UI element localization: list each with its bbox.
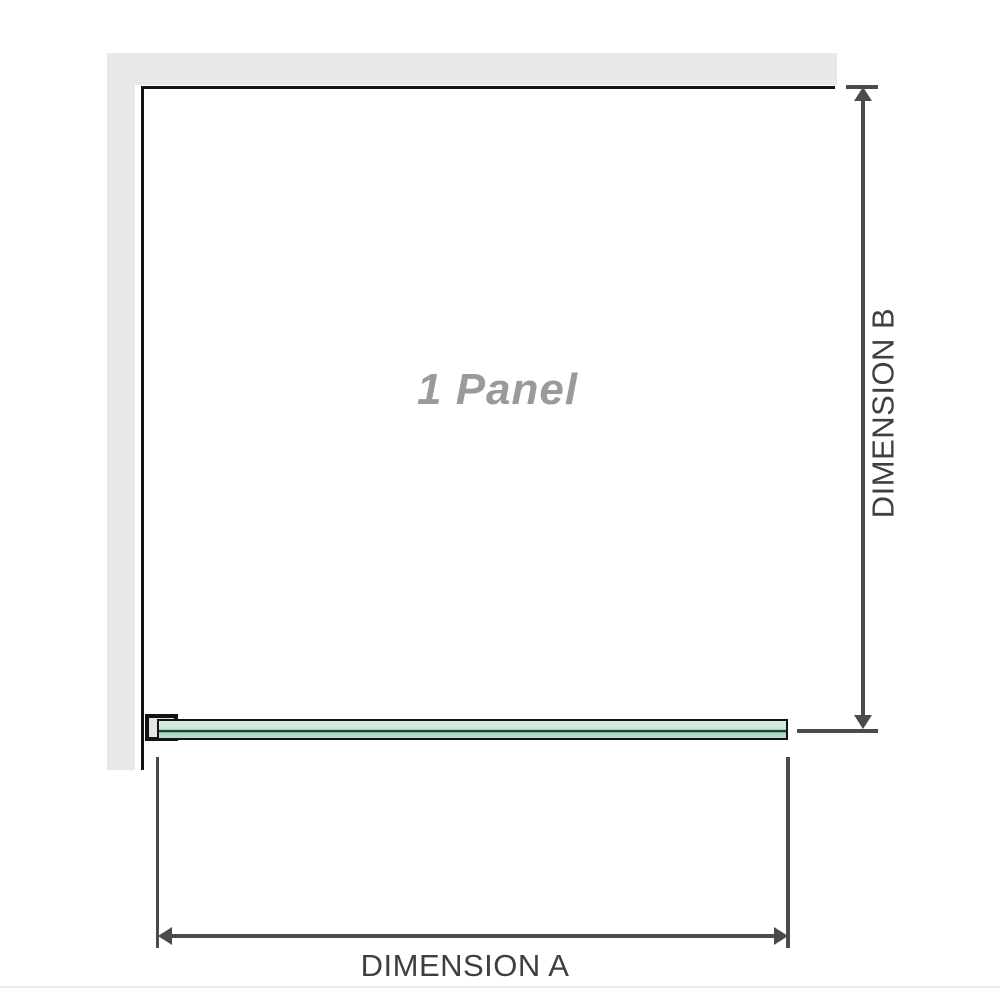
image-bottom-edge [0, 986, 1000, 988]
dimension-a-label: DIMENSION A [361, 950, 570, 981]
wall-segment-left [107, 53, 135, 770]
arrow-up-icon [854, 87, 872, 101]
arrow-left-icon [158, 927, 172, 945]
dimension-a-line [168, 934, 778, 938]
dimension-b-line [861, 97, 865, 719]
wall-segment-top [107, 53, 837, 85]
dimension-a-extension-right [786, 757, 790, 948]
panel-count-label: 1 Panel [417, 368, 578, 412]
glass-panel-top-view [157, 719, 788, 740]
diagram-canvas: 1 Panel DIMENSION B DIMENSION A [0, 0, 1000, 1000]
panel-outline-area [141, 86, 835, 770]
arrow-right-icon [774, 927, 788, 945]
arrow-down-icon [854, 715, 872, 729]
dimension-b-tick-bottom [797, 729, 878, 733]
dimension-b-label: DIMENSION B [868, 308, 899, 518]
dimension-a-extension-left [156, 757, 159, 948]
